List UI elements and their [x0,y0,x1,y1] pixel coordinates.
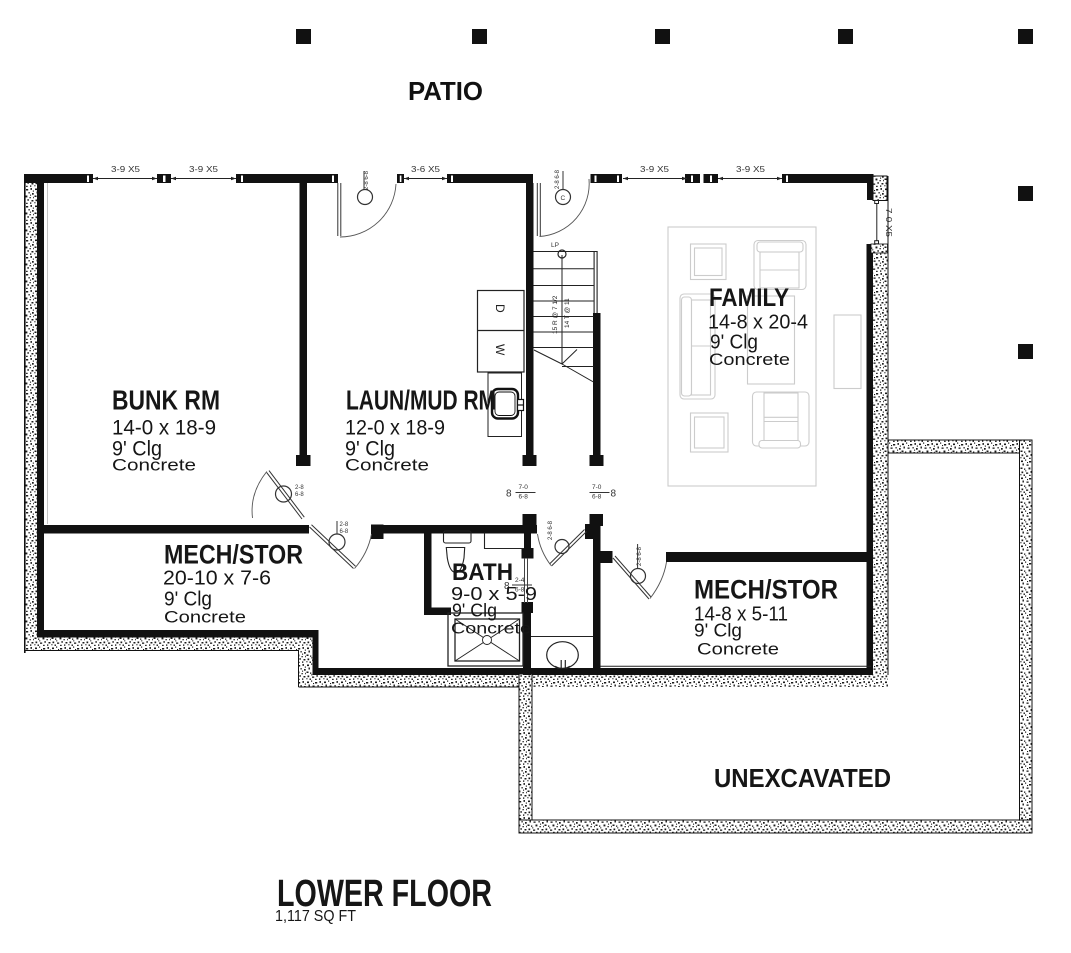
svg-text:3-9 X5: 3-9 X5 [736,164,765,174]
svg-text:PATIO: PATIO [408,76,483,106]
svg-text:BATH: BATH [452,559,513,586]
svg-text:14-8 x 20-4: 14-8 x 20-4 [708,312,808,334]
svg-text:2-8 6-8: 2-8 6-8 [364,170,370,190]
svg-text:6-8: 6-8 [295,492,304,498]
svg-text:6-8: 6-8 [592,494,602,501]
svg-text:14-0 x 18-9: 14-0 x 18-9 [112,417,216,440]
svg-text:MECH/STOR: MECH/STOR [694,575,838,605]
svg-text:W: W [493,344,507,356]
svg-text:6-8: 6-8 [340,529,349,535]
svg-text:Concrete: Concrete [697,641,779,659]
svg-text:6-8: 6-8 [519,494,529,501]
svg-text:15 R @ 7 1/2: 15 R @ 7 1/2 [552,295,559,334]
svg-text:C: C [561,195,566,202]
svg-text:9' Clg: 9' Clg [694,621,742,641]
svg-text:LP: LP [551,242,559,249]
svg-text:7-0: 7-0 [519,484,529,491]
svg-text:7-0: 7-0 [592,484,602,491]
svg-text:3-9 X5: 3-9 X5 [111,164,140,174]
svg-text:2-8 6-8: 2-8 6-8 [555,169,561,189]
svg-text:2-8: 2-8 [340,522,349,528]
svg-text:Concrete: Concrete [451,621,531,638]
svg-text:20-10 x 7-6: 20-10 x 7-6 [163,568,271,590]
svg-text:3-6 X5: 3-6 X5 [411,164,440,174]
svg-text:UNEXCAVATED: UNEXCAVATED [714,763,891,793]
svg-text:12-0 x 18-9: 12-0 x 18-9 [345,417,445,440]
svg-text:FAMILY: FAMILY [709,284,789,312]
svg-text:14 T @ 11: 14 T @ 11 [564,298,571,328]
svg-text:LAUN/MUD RM: LAUN/MUD RM [346,385,496,416]
svg-text:1,117 SQ FT: 1,117 SQ FT [275,908,356,925]
svg-text:3-9 X5: 3-9 X5 [189,164,218,174]
svg-text:MECH/STOR: MECH/STOR [164,540,303,570]
svg-text:9' Clg: 9' Clg [452,601,497,621]
svg-text:2-8: 2-8 [295,485,304,491]
svg-text:Concrete: Concrete [709,351,790,369]
svg-text:Concrete: Concrete [345,456,429,475]
svg-text:8: 8 [506,489,512,500]
svg-text:2-8 6-8: 2-8 6-8 [637,546,643,566]
svg-text:3-9 X5: 3-9 X5 [640,164,669,174]
svg-text:8: 8 [611,489,617,500]
svg-text:BUNK RM: BUNK RM [112,385,220,416]
svg-text:2-8 6-8: 2-8 6-8 [548,520,554,540]
svg-text:7-0 X5: 7-0 X5 [884,208,894,237]
svg-text:9' Clg: 9' Clg [164,589,212,611]
svg-text:D: D [493,304,507,313]
svg-text:Concrete: Concrete [112,456,196,475]
svg-text:2-4: 2-4 [515,577,525,584]
svg-text:Concrete: Concrete [164,609,246,627]
